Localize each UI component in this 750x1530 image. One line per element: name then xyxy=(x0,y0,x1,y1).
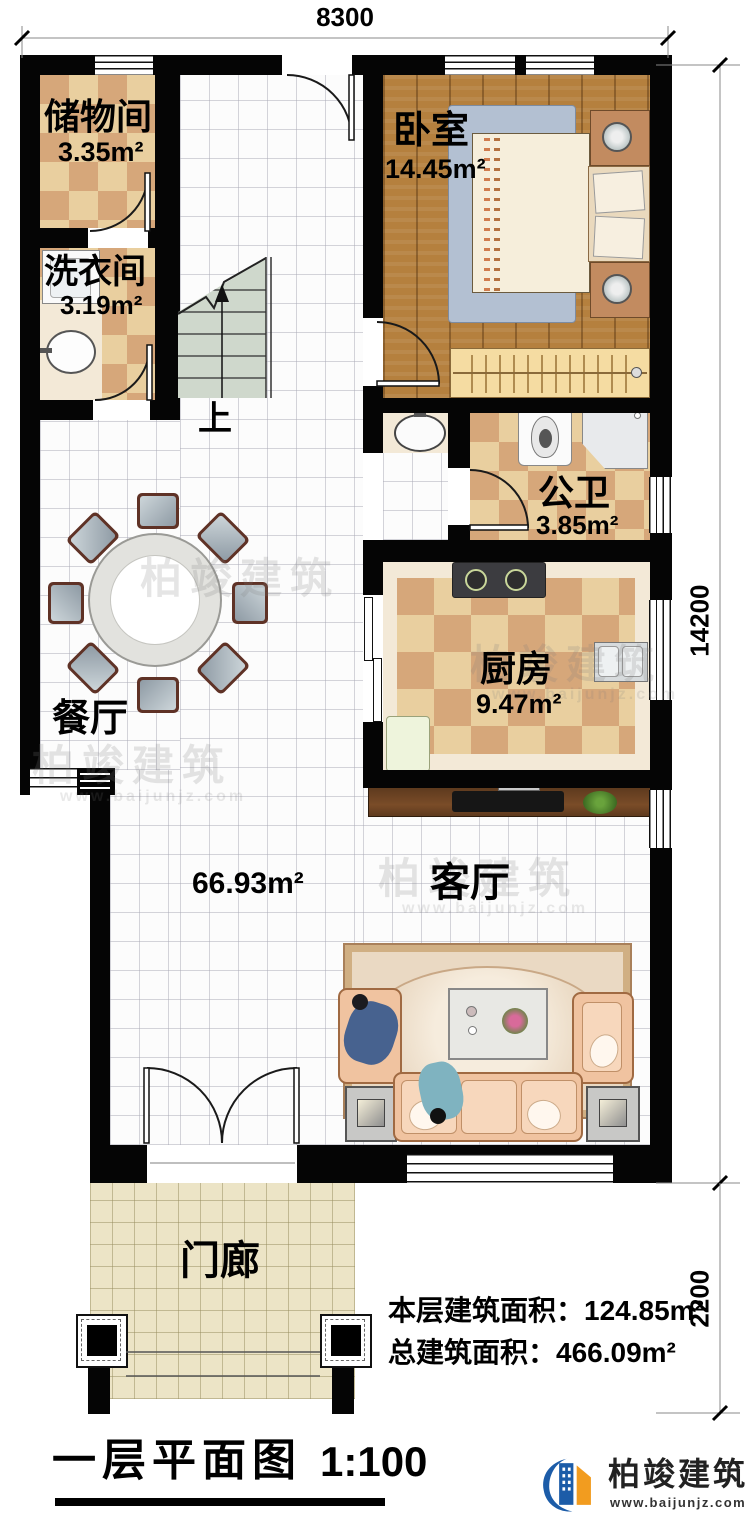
porch-column xyxy=(76,1314,128,1368)
wall-alcove-bath xyxy=(448,413,470,468)
plan-title: 一层平面图 xyxy=(52,1438,302,1484)
brand-url: www.baijunjz.com xyxy=(610,1496,746,1510)
room-area-bedroom: 14.45m² xyxy=(385,155,486,183)
column-base xyxy=(88,1368,110,1414)
table-cup xyxy=(468,1026,477,1035)
nightstand-lamp xyxy=(602,274,632,304)
room-label-dining: 餐厅 xyxy=(52,700,128,740)
dimension-top: 8300 xyxy=(300,4,390,31)
watermark-text: 柏竣建筑 xyxy=(140,545,340,606)
column-core xyxy=(87,1325,117,1356)
watermark-url: www.baijunjz.com xyxy=(60,788,246,806)
squat-toilet xyxy=(518,408,572,466)
door-opening-bathroom xyxy=(448,468,470,525)
room-area-bathroom: 3.85m² xyxy=(536,512,618,539)
column-core xyxy=(331,1325,361,1356)
window-bedroom-1 xyxy=(445,55,515,75)
table-lamp xyxy=(357,1099,385,1127)
wardrobe-knob xyxy=(631,367,642,378)
person-figure xyxy=(338,996,405,1070)
nightstand-lamp xyxy=(602,122,632,152)
sofa-cushion xyxy=(461,1080,517,1134)
window-bathroom xyxy=(649,477,673,533)
laundry-sink xyxy=(46,330,96,374)
sliding-door-panel xyxy=(373,658,382,722)
column-base xyxy=(332,1368,354,1414)
wall-bedroom-bottom xyxy=(363,398,672,413)
open-area-label: 66.93m² xyxy=(192,868,304,900)
laundry-faucet xyxy=(40,348,52,353)
fridge xyxy=(386,716,430,772)
dining-chair xyxy=(48,582,84,624)
pillow xyxy=(593,170,646,213)
door-opening-bedroom xyxy=(363,318,383,386)
room-label-laundry: 洗衣间 xyxy=(44,255,146,291)
window-storage xyxy=(95,55,153,75)
wall-alcove-left xyxy=(363,398,383,453)
plan-scale: 1:100 xyxy=(320,1440,427,1484)
wall-left-lower xyxy=(90,790,110,1150)
room-label-living: 客厅 xyxy=(430,862,510,904)
bath-vestibule-floor xyxy=(383,453,448,540)
burner xyxy=(505,569,527,591)
watermark-text: 柏竣建筑 xyxy=(32,732,232,793)
vanity-sink xyxy=(394,414,446,452)
person-head xyxy=(430,1108,446,1124)
wardrobe xyxy=(450,348,650,398)
door-opening-hall-top xyxy=(282,55,352,75)
table-lamp xyxy=(599,1099,627,1127)
room-label-storage: 储物间 xyxy=(44,98,152,136)
stove xyxy=(452,562,546,598)
pillow xyxy=(593,216,645,260)
bed-stripe xyxy=(494,135,500,291)
room-label-porch: 门廊 xyxy=(180,1240,260,1282)
side-table xyxy=(586,1086,640,1142)
dining-chair xyxy=(137,677,179,713)
floor-area-summary: 本层建筑面积：124.85m² xyxy=(388,1296,704,1325)
dimension-right: 14200 xyxy=(686,556,713,686)
room-label-kitchen: 厨房 xyxy=(480,650,552,688)
burner xyxy=(465,569,487,591)
room-area-kitchen: 9.47m² xyxy=(476,690,562,718)
side-table xyxy=(345,1086,397,1142)
wardrobe-hangers xyxy=(459,355,627,393)
room-area-laundry: 3.19m² xyxy=(60,292,142,319)
coffee-table xyxy=(448,988,548,1060)
squat-drain xyxy=(539,429,552,448)
wall-left-upper xyxy=(20,55,40,795)
door-opening-laundry xyxy=(93,400,150,420)
door-opening-entry xyxy=(147,1145,297,1183)
wall-storage-hall xyxy=(155,75,180,420)
room-label-bedroom: 卧室 xyxy=(393,112,469,152)
wardrobe-rod xyxy=(453,372,647,374)
porch-floor xyxy=(90,1183,355,1399)
floor-plan-canvas: 柏竣建筑 柏竣建筑 www.baijunjz.com 柏竣建筑 www.baij… xyxy=(0,0,750,1530)
brand-logo-icon xyxy=(536,1450,602,1518)
table-flowers xyxy=(502,1008,528,1034)
shower-drain xyxy=(634,412,641,419)
sliding-door-panel xyxy=(364,597,373,661)
armchair xyxy=(338,988,402,1084)
armchair xyxy=(572,992,634,1084)
total-area-summary: 总建筑面积：466.09m² xyxy=(388,1338,676,1367)
tv xyxy=(452,791,564,812)
plant xyxy=(583,791,617,814)
dining-chair xyxy=(137,493,179,529)
room-label-bathroom: 公卫 xyxy=(538,474,610,512)
window-bedroom-2 xyxy=(526,55,594,75)
porch-column xyxy=(320,1314,372,1368)
person-head xyxy=(352,994,368,1010)
window-living-bottom xyxy=(407,1154,613,1183)
stairs-up-label: 上 xyxy=(198,402,232,438)
window-living-right xyxy=(649,790,673,848)
dining-floor-strip xyxy=(110,770,180,1145)
door-opening-storage xyxy=(88,228,148,248)
wall-kitchen-top xyxy=(363,540,672,562)
room-area-storage: 3.35m² xyxy=(58,138,144,166)
wall-kitchen-bottom xyxy=(363,770,672,788)
brand-name: 柏竣建筑 xyxy=(608,1458,748,1492)
table-cup xyxy=(466,1006,477,1017)
